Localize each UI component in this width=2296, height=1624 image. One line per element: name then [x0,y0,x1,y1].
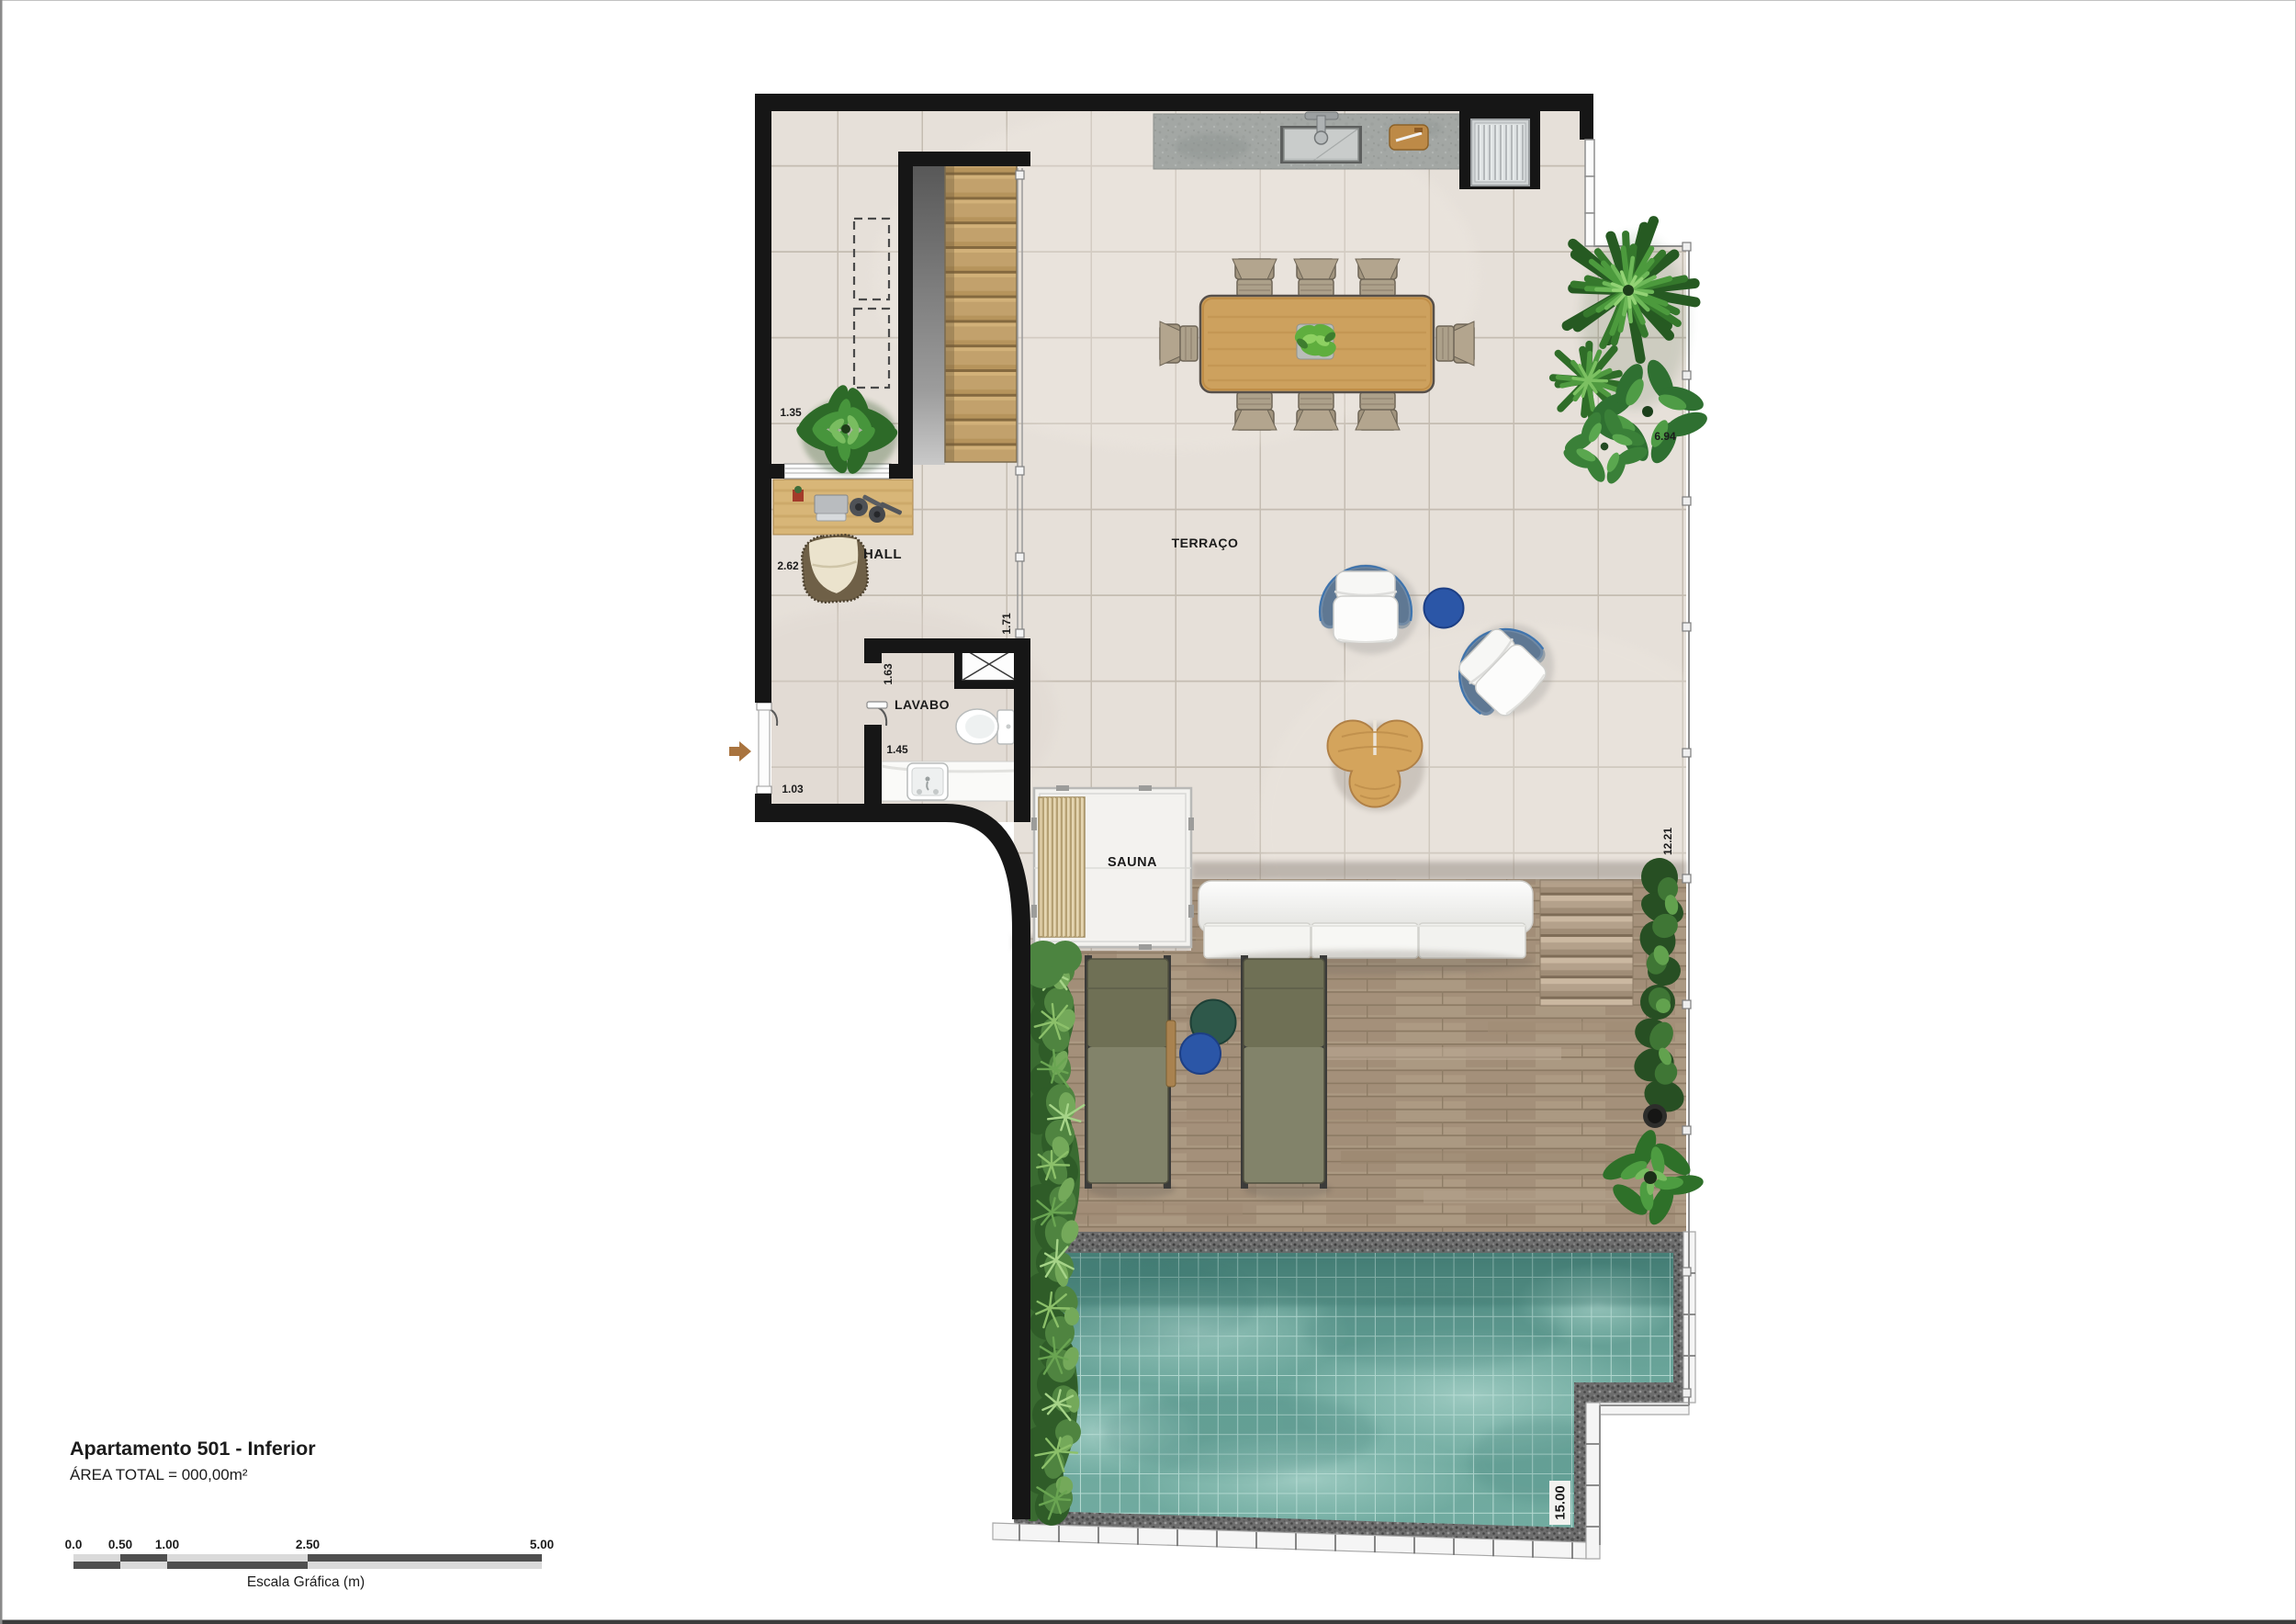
svg-text:Escala Gráfica (m): Escala Gráfica (m) [247,1574,365,1590]
svg-text:LAVABO: LAVABO [895,697,950,712]
svg-text:1.45: 1.45 [886,743,908,756]
svg-text:2.50: 2.50 [296,1538,320,1551]
svg-text:6.94: 6.94 [1654,430,1676,443]
svg-text:5.00: 5.00 [530,1538,554,1551]
svg-text:Apartamento 501 - Inferior: Apartamento 501 - Inferior [70,1438,316,1460]
svg-text:1.63: 1.63 [882,663,895,685]
svg-text:1.00: 1.00 [155,1538,179,1551]
svg-text:HALL: HALL [863,547,902,562]
svg-text:1.71: 1.71 [1000,613,1013,635]
svg-text:ÁREA TOTAL = 000,00m²: ÁREA TOTAL = 000,00m² [70,1466,248,1483]
svg-text:1.35: 1.35 [780,406,802,419]
svg-text:15.00: 15.00 [1553,1485,1569,1520]
svg-text:SAUNA: SAUNA [1108,855,1157,870]
svg-text:1.03: 1.03 [782,783,804,795]
svg-text:2.62: 2.62 [777,559,799,572]
svg-text:12.21: 12.21 [1661,828,1674,855]
svg-text:0.50: 0.50 [108,1538,132,1551]
svg-text:0.0: 0.0 [65,1538,83,1551]
svg-text:TERRAÇO: TERRAÇO [1172,536,1239,550]
